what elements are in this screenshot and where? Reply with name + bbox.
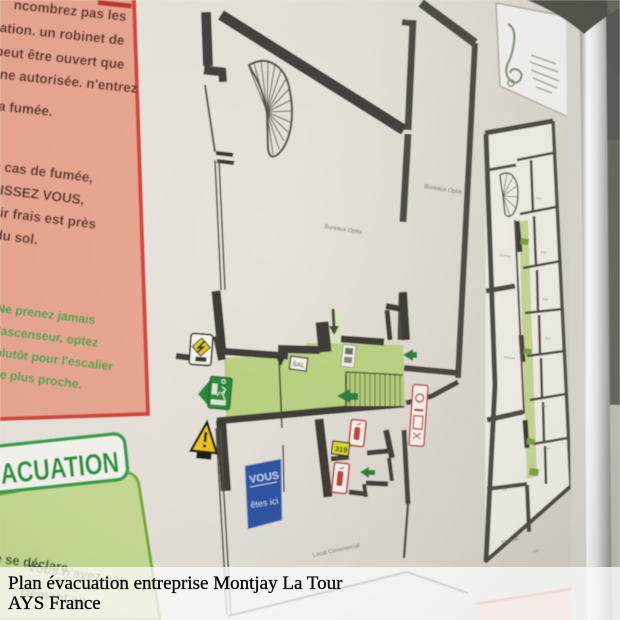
svg-text:AYS France: AYS France [8, 593, 101, 614]
svg-text:Plan évacuation entreprise Mon: Plan évacuation entreprise Montjay La To… [8, 573, 343, 594]
